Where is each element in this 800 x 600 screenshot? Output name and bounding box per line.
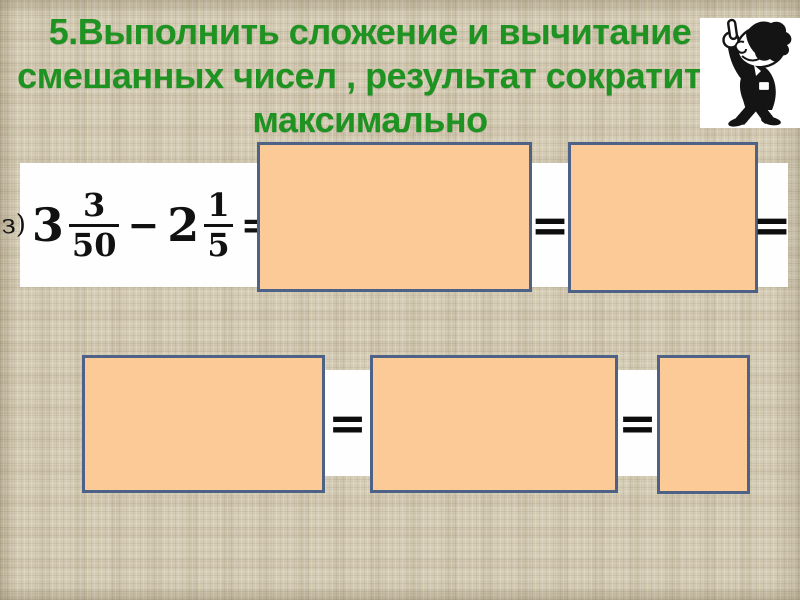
pointing-man-icon bbox=[700, 18, 800, 128]
answer-box-4[interactable] bbox=[370, 355, 618, 493]
numerator: 3 bbox=[80, 189, 108, 222]
title-line-1: 5.Выполнить сложение и вычитание bbox=[0, 10, 740, 54]
equals-sign: = bbox=[532, 163, 568, 287]
slide: 5.Выполнить сложение и вычитание смешанн… bbox=[0, 0, 800, 600]
minus-operator: − bbox=[127, 206, 159, 244]
fraction-2: 1 5 bbox=[204, 189, 232, 261]
answer-box-3[interactable] bbox=[82, 355, 325, 493]
pointing-man-clipart bbox=[700, 18, 800, 128]
answer-box-1[interactable] bbox=[257, 142, 532, 292]
fraction-1: 3 50 bbox=[69, 189, 120, 261]
item-label: з) bbox=[2, 210, 26, 240]
title-line-2: смешанных чисел , результат сократить bbox=[0, 54, 740, 98]
denominator: 50 bbox=[69, 229, 120, 262]
whole-number-1: 3 bbox=[32, 202, 64, 248]
math-expression: з) 3 3 50 − 2 1 5 = bbox=[20, 163, 257, 287]
title-line-3: максимально bbox=[0, 98, 740, 142]
equals-sign: = bbox=[618, 370, 657, 476]
equals-sign: = bbox=[325, 370, 370, 476]
answer-box-5[interactable] bbox=[657, 355, 750, 494]
whole-number-2: 2 bbox=[167, 202, 199, 248]
answer-box-2[interactable] bbox=[568, 142, 758, 293]
denominator: 5 bbox=[204, 229, 232, 262]
numerator: 1 bbox=[204, 189, 232, 222]
page-title: 5.Выполнить сложение и вычитание смешанн… bbox=[0, 10, 740, 142]
equals-sign: = bbox=[755, 163, 789, 287]
